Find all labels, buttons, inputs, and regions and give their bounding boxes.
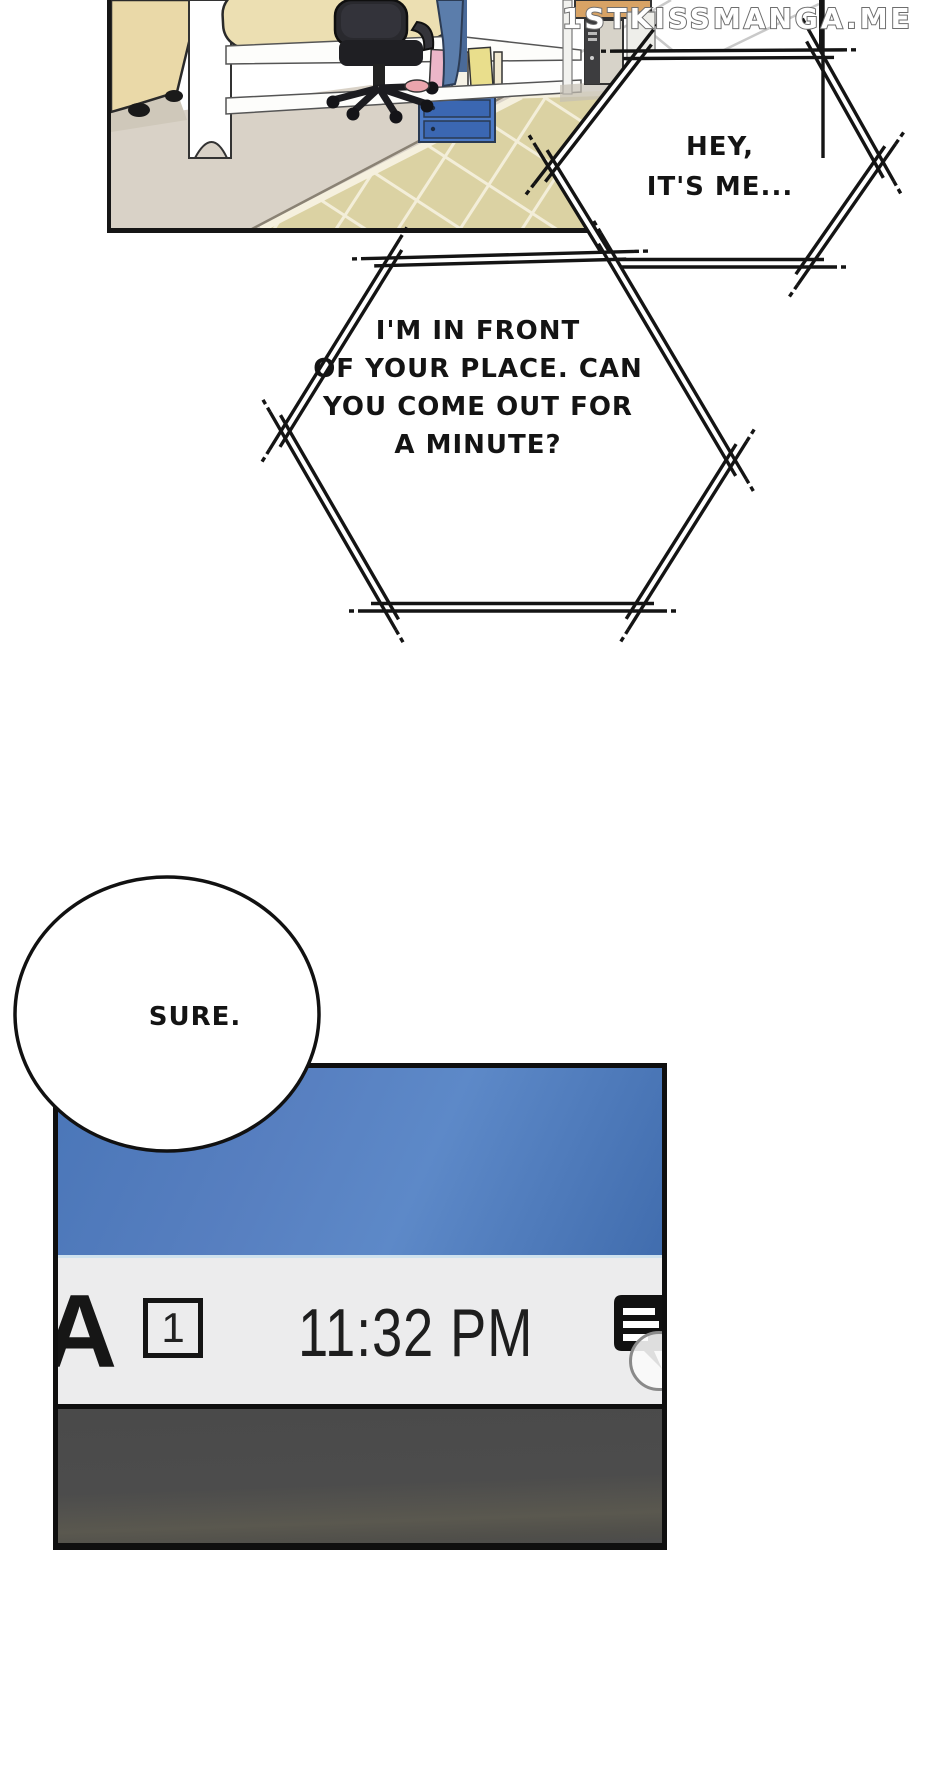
pink-slipper <box>405 80 429 92</box>
comic-page: A 1 11:32 PM HEY, IT'S ME... I'M IN FRON… <box>0 0 940 1767</box>
sure-line: SURE. <box>45 1000 345 1034</box>
phone-wallpaper <box>58 1068 662 1258</box>
hex2-line2: OF YOUR PLACE. CAN <box>268 350 688 388</box>
status-bar-clock: 11:32 PM <box>298 1296 533 1371</box>
speech-bubble-sure-text: SURE. <box>45 1000 345 1034</box>
hex1-line1: HEY, <box>570 127 870 167</box>
phone-screen-panel: A 1 11:32 PM <box>53 1063 667 1550</box>
bed-corner <box>111 0 191 132</box>
phone-bottom-bar <box>58 1404 662 1543</box>
watermark-text: 1STKISSMANGA.ME <box>562 2 913 35</box>
hex2-line4: A MINUTE? <box>268 426 688 464</box>
speech-bubble-hex2-text: I'M IN FRONT OF YOUR PLACE. CAN YOU COME… <box>268 312 688 464</box>
site-watermark: 1STKISSMANGA.ME <box>560 0 940 40</box>
status-bar-letter: A <box>53 1280 117 1384</box>
notification-badge: 1 <box>143 1298 203 1358</box>
notification-count: 1 <box>161 1304 184 1352</box>
speech-bubble-hex1-text: HEY, IT'S ME... <box>570 127 870 207</box>
hex2-line1: I'M IN FRONT <box>268 312 688 350</box>
hex1-line2: IT'S ME... <box>570 167 870 207</box>
hex2-line3: YOU COME OUT FOR <box>268 388 688 426</box>
